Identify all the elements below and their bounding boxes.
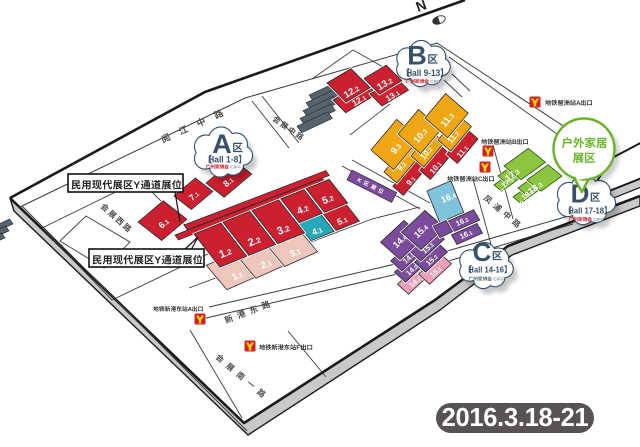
- svg-text:Hall 14-16: Hall 14-16: [468, 265, 504, 275]
- svg-text:CIFF: CIFF: [230, 165, 241, 171]
- svg-text:Y: Y: [133, 181, 140, 192]
- svg-text:CIFF: CIFF: [493, 277, 504, 283]
- svg-text:CIFF: CIFF: [430, 79, 441, 85]
- svg-text:Y: Y: [154, 256, 161, 267]
- svg-text:Hall 1-8: Hall 1-8: [208, 155, 238, 165]
- svg-text:Y: Y: [531, 97, 538, 109]
- svg-text:C: C: [473, 237, 492, 267]
- svg-text:F: F: [296, 345, 300, 352]
- svg-text:Y: Y: [196, 314, 203, 326]
- svg-text:2016.3.18-21: 2016.3.18-21: [442, 404, 589, 432]
- svg-text:CIFF: CIFF: [593, 217, 604, 223]
- svg-text:C: C: [478, 176, 483, 183]
- svg-text:Y: Y: [481, 162, 488, 174]
- svg-text:A: A: [576, 100, 581, 107]
- svg-text:Hall 17-18: Hall 17-18: [568, 206, 604, 216]
- svg-text:Y: Y: [246, 341, 253, 353]
- svg-text:B: B: [512, 139, 517, 146]
- svg-text:Y: Y: [484, 146, 491, 158]
- svg-text:B: B: [407, 41, 427, 71]
- svg-text:Hall 9-13: Hall 9-13: [406, 68, 440, 78]
